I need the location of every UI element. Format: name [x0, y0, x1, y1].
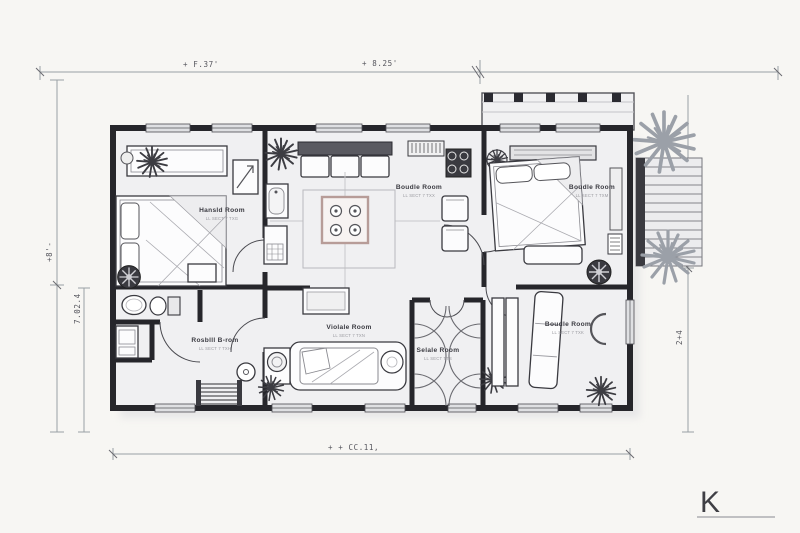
room-label-living: Boudle Room — [396, 184, 442, 191]
room-sub-bedroom-left: LL SECT 7 TXG — [206, 216, 239, 221]
chaise-sofa — [529, 291, 564, 389]
bed-double — [489, 157, 585, 251]
bench — [524, 246, 582, 264]
room-sub-living: LL SECT 7 TXX — [403, 193, 435, 198]
ceiling-fan-icon — [118, 266, 141, 289]
dim-left-inner: 7.02.4 — [73, 293, 82, 324]
dim-left-outer: +8'- — [45, 242, 54, 262]
logo-letter: K — [700, 486, 720, 519]
nightstand — [188, 264, 216, 282]
room-sub-hall-left: LL SECT 7 TXH — [199, 346, 231, 351]
floor-plan-sheet: + F.37' + 8.25' +8'- 7.02.4 2+4 + + CC.1… — [0, 0, 800, 533]
room-label-hall-left: Rosblll B-rom — [191, 337, 238, 344]
wardrobe-door — [506, 298, 518, 386]
room-label-lounge: Violale Room — [326, 324, 371, 331]
stove — [446, 149, 471, 177]
dim-bottom: + + CC.11, — [328, 443, 379, 452]
wardrobe — [610, 168, 622, 230]
dim-top-right: + 8.25' — [362, 59, 398, 68]
kitchen-sink — [266, 184, 288, 218]
kitchen-island — [322, 197, 368, 243]
sink — [122, 296, 146, 315]
room-label-bedroom-right: Boudle Room — [569, 184, 615, 191]
vent-grille — [608, 234, 622, 254]
wardrobe-door — [492, 298, 504, 386]
console — [510, 146, 596, 160]
kitchen-cabinet — [264, 226, 287, 264]
mirror-cabinet — [233, 160, 258, 194]
room-label-bedroom-left: Hansld Room — [199, 207, 245, 214]
floor-plan-drawing: + F.37' + 8.25' +8'- 7.02.4 2+4 + + CC.1… — [0, 0, 800, 533]
wall-shelf — [303, 288, 349, 314]
room-sub-lounge: LL SECT 7 TXN — [333, 333, 365, 338]
daybed — [290, 342, 406, 390]
room-sub-bath-small: LL SECT TTS — [424, 356, 452, 361]
door-knob — [237, 363, 255, 381]
room-label-study-right: Boudle Room — [545, 321, 591, 328]
dim-top-left: + F.37' — [183, 60, 219, 69]
room-sub-bedroom-right: LL SECT 7 TXM — [576, 193, 609, 198]
shower-cabinet — [116, 326, 138, 358]
sofa — [298, 142, 392, 177]
room-sub-study-right: LL SECT 7 TXK — [552, 330, 584, 335]
ceiling-fan-icon — [587, 260, 611, 284]
room-label-bath-small: Selale Room — [417, 347, 460, 354]
logo-block: K — [697, 486, 775, 519]
dim-right: 2+4 — [675, 330, 684, 345]
vent-hood — [408, 141, 444, 156]
